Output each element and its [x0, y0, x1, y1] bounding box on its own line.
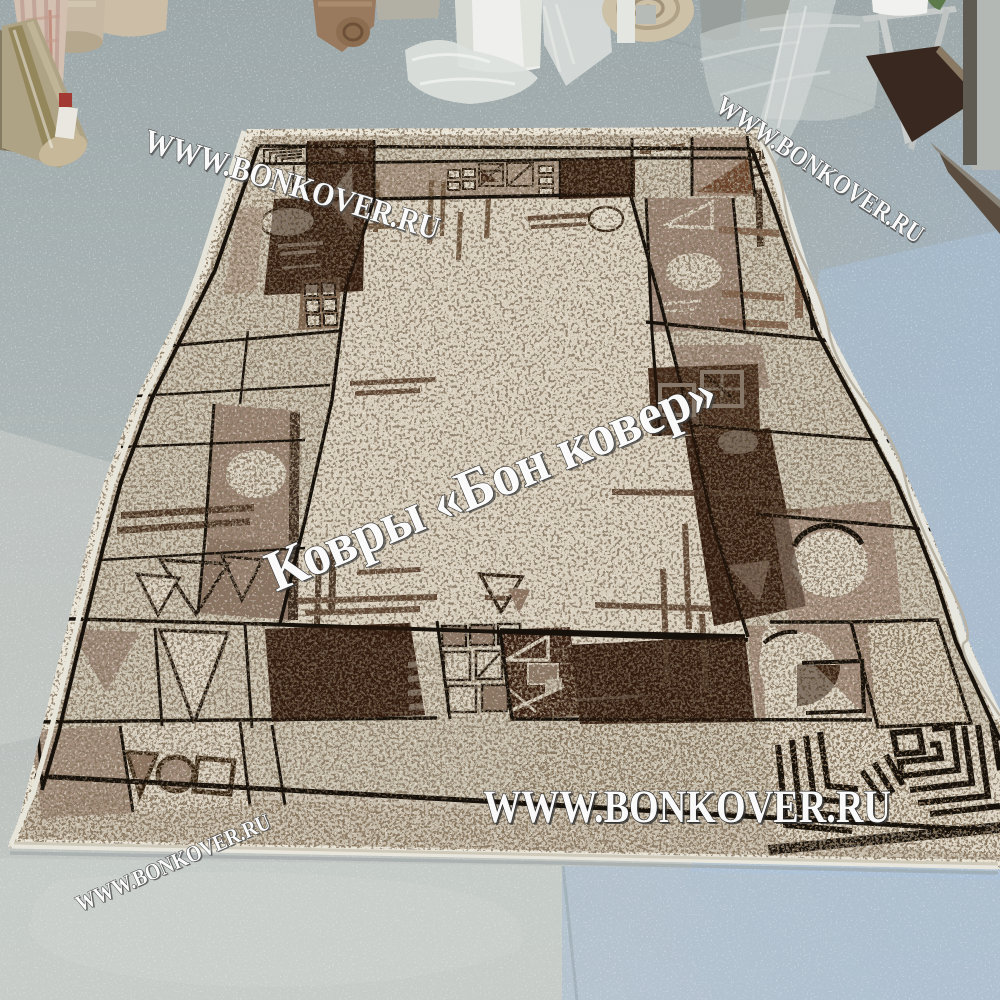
svg-text:WWW.BONKOVER.RU: WWW.BONKOVER.RU: [483, 781, 891, 833]
